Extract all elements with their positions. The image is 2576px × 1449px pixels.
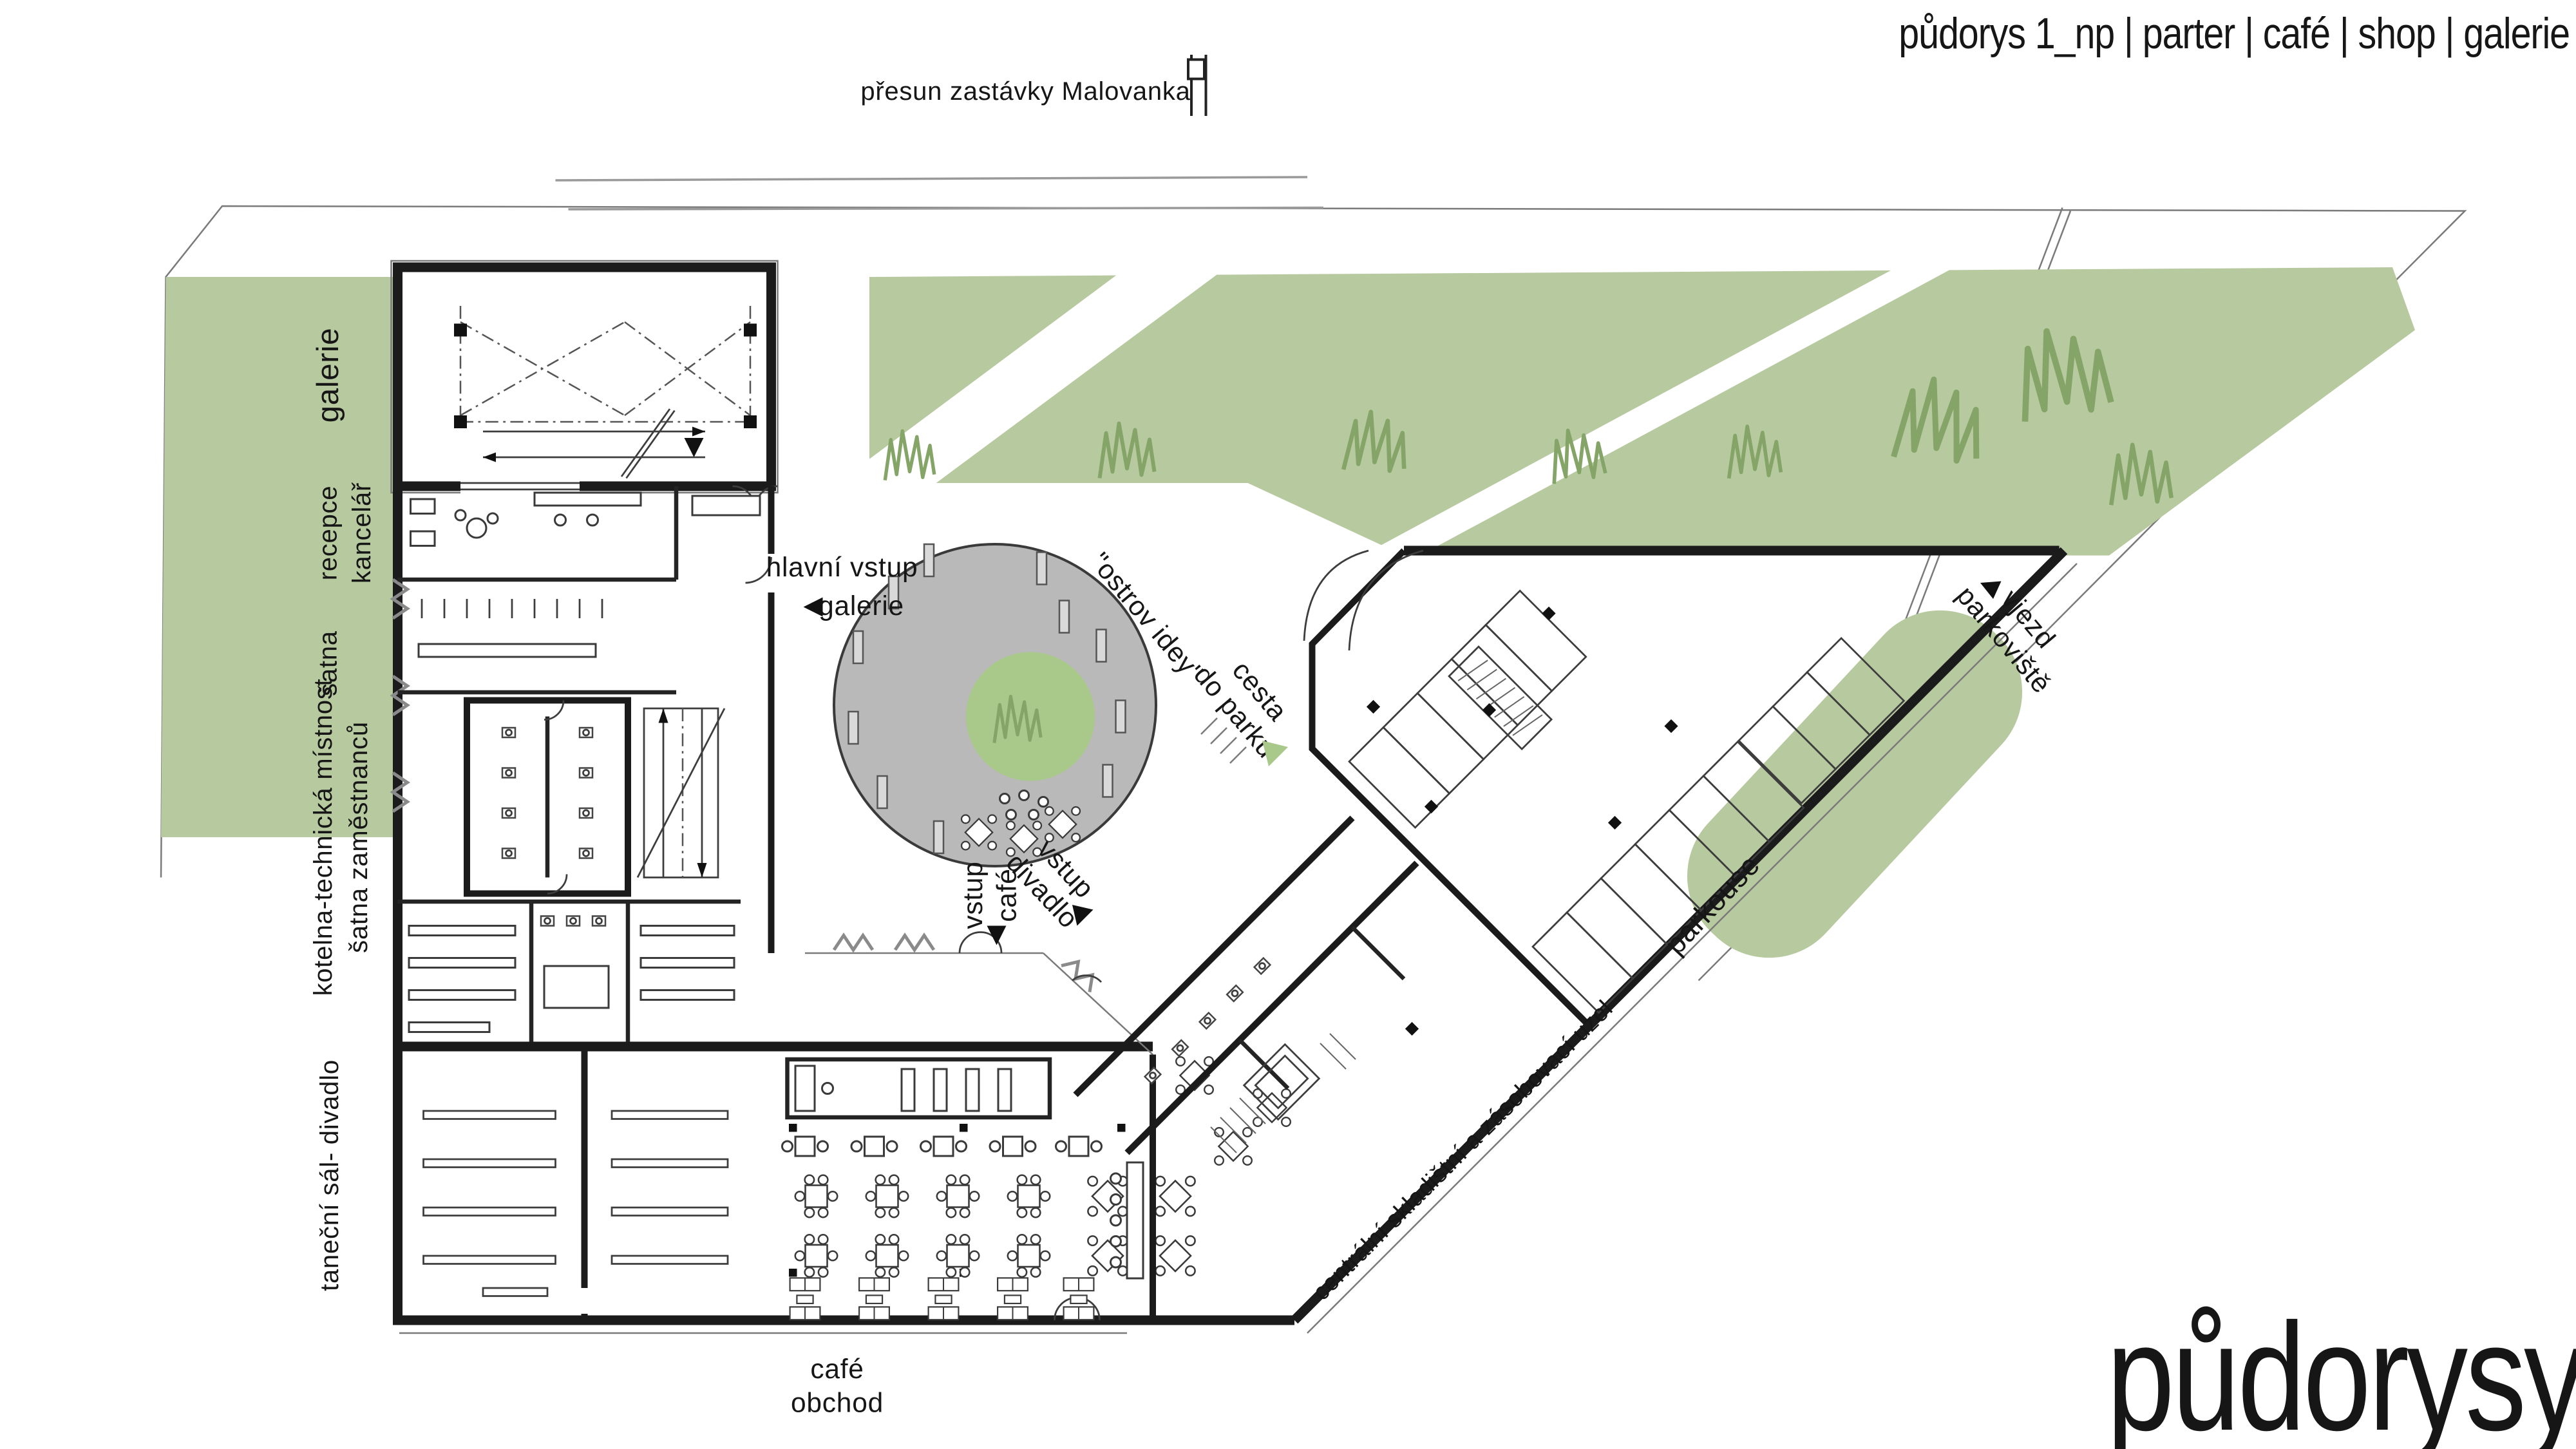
cafe-shop-hall bbox=[782, 933, 1291, 1320]
label-hlavni-vstup: hlavní vstup bbox=[766, 553, 918, 583]
label-galerie: galerie bbox=[311, 328, 345, 423]
label-kotelna: kotelna-technická místnost bbox=[309, 678, 337, 996]
hlavni-vstup-arrow-icon bbox=[804, 598, 823, 617]
park-path-arrow-icon bbox=[1262, 741, 1288, 766]
label-vstup-cafe-1: vstup bbox=[958, 861, 989, 929]
label-hlavni-galerie: galerie bbox=[819, 591, 904, 621]
bus-stop-icon bbox=[1188, 55, 1206, 116]
label-tanecni-sal: taneční sál- divadlo bbox=[316, 1059, 344, 1291]
label-obchod: obchod bbox=[791, 1388, 884, 1419]
label-satna-zamestnancu: šatna zaměstnanců bbox=[345, 721, 373, 953]
vstup-cafe-arrow-icon bbox=[987, 926, 1007, 945]
label-cafe: café bbox=[810, 1354, 864, 1385]
vstup-divadlo-arrow-icon bbox=[1072, 905, 1094, 926]
label-sklad: centrální skladištní a zásobovací uzel bbox=[1307, 995, 1618, 1305]
floor-plan-page: půdorys 1_np | parter | café | shop | ga… bbox=[0, 0, 2576, 1449]
sheet-title: půdorysy bbox=[2107, 1291, 2576, 1449]
gallery-building bbox=[392, 261, 778, 509]
bus-stop-label: přesun zastávky Malovanka bbox=[860, 77, 1190, 106]
page-title: půdorys 1_np | parter | café | shop | ga… bbox=[1899, 10, 2570, 58]
labels: půdorys 1_np | parter | café | shop | ga… bbox=[309, 10, 2576, 1449]
site-plan-drawing: půdorys 1_np | parter | café | shop | ga… bbox=[0, 0, 2576, 1449]
label-recepce: recepce bbox=[314, 486, 343, 581]
label-kancelar: kancelář bbox=[348, 482, 376, 583]
